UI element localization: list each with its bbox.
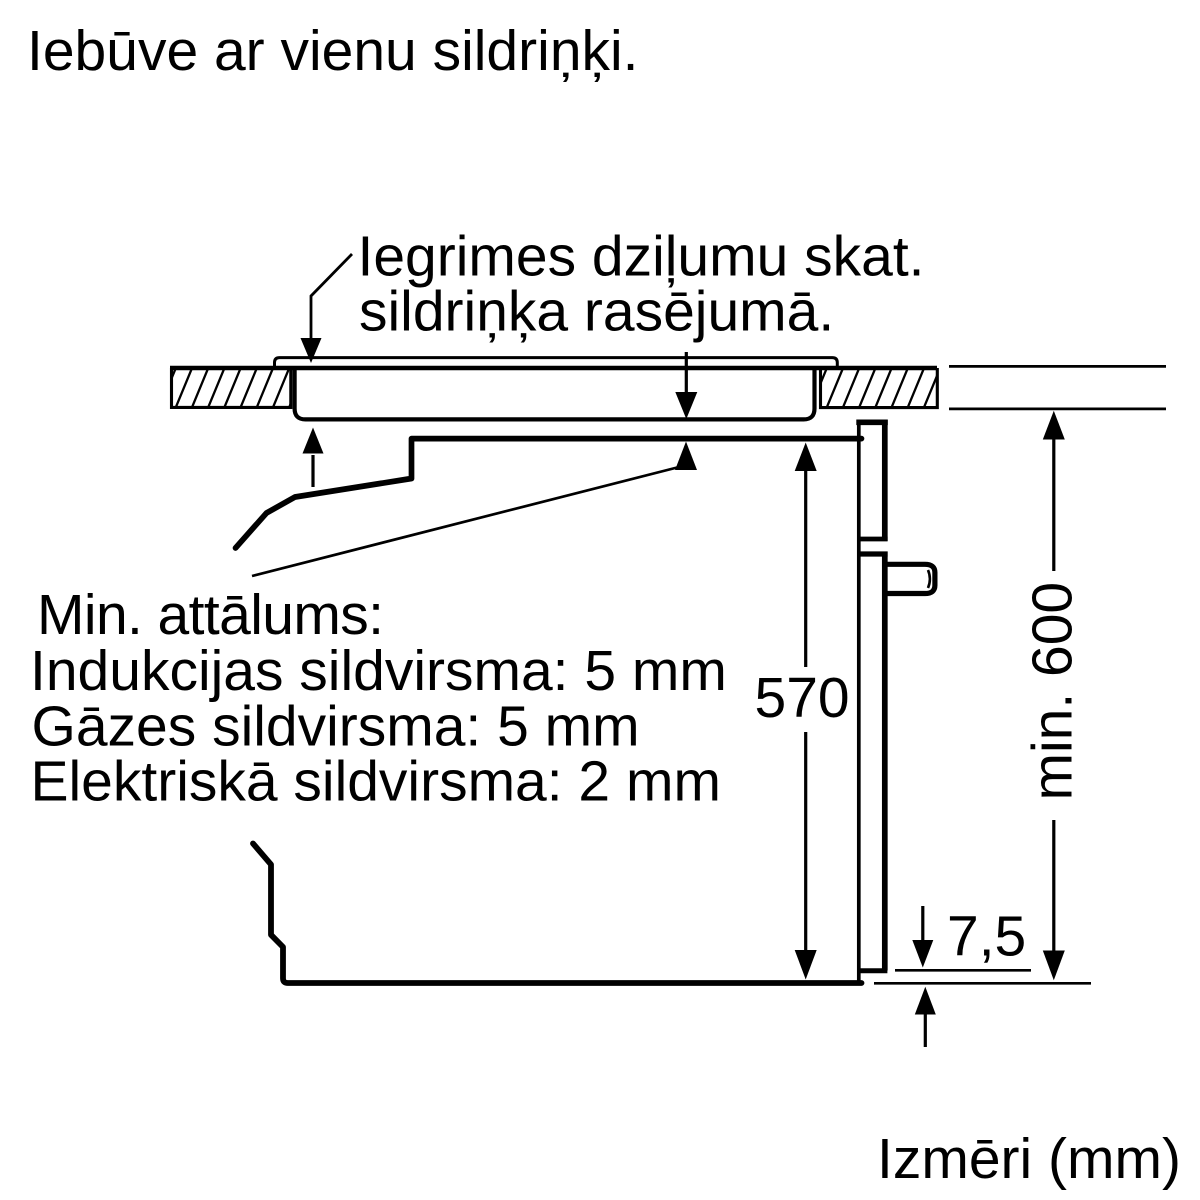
svg-text:570: 570 <box>755 666 850 730</box>
svg-text:Elektriskā sildvirsma: 2 mm: Elektriskā sildvirsma: 2 mm <box>31 750 721 814</box>
svg-text:Iebūve ar vienu sildriņķi.: Iebūve ar vienu sildriņķi. <box>27 19 638 83</box>
svg-text:Izmēri (mm): Izmēri (mm) <box>877 1127 1181 1191</box>
svg-text:Min. attālums:: Min. attālums: <box>37 583 383 647</box>
svg-text:7,5: 7,5 <box>947 905 1026 969</box>
svg-text:sildriņķa rasējumā.: sildriņķa rasējumā. <box>359 280 834 344</box>
svg-text:min. 600: min. 600 <box>1021 582 1085 801</box>
